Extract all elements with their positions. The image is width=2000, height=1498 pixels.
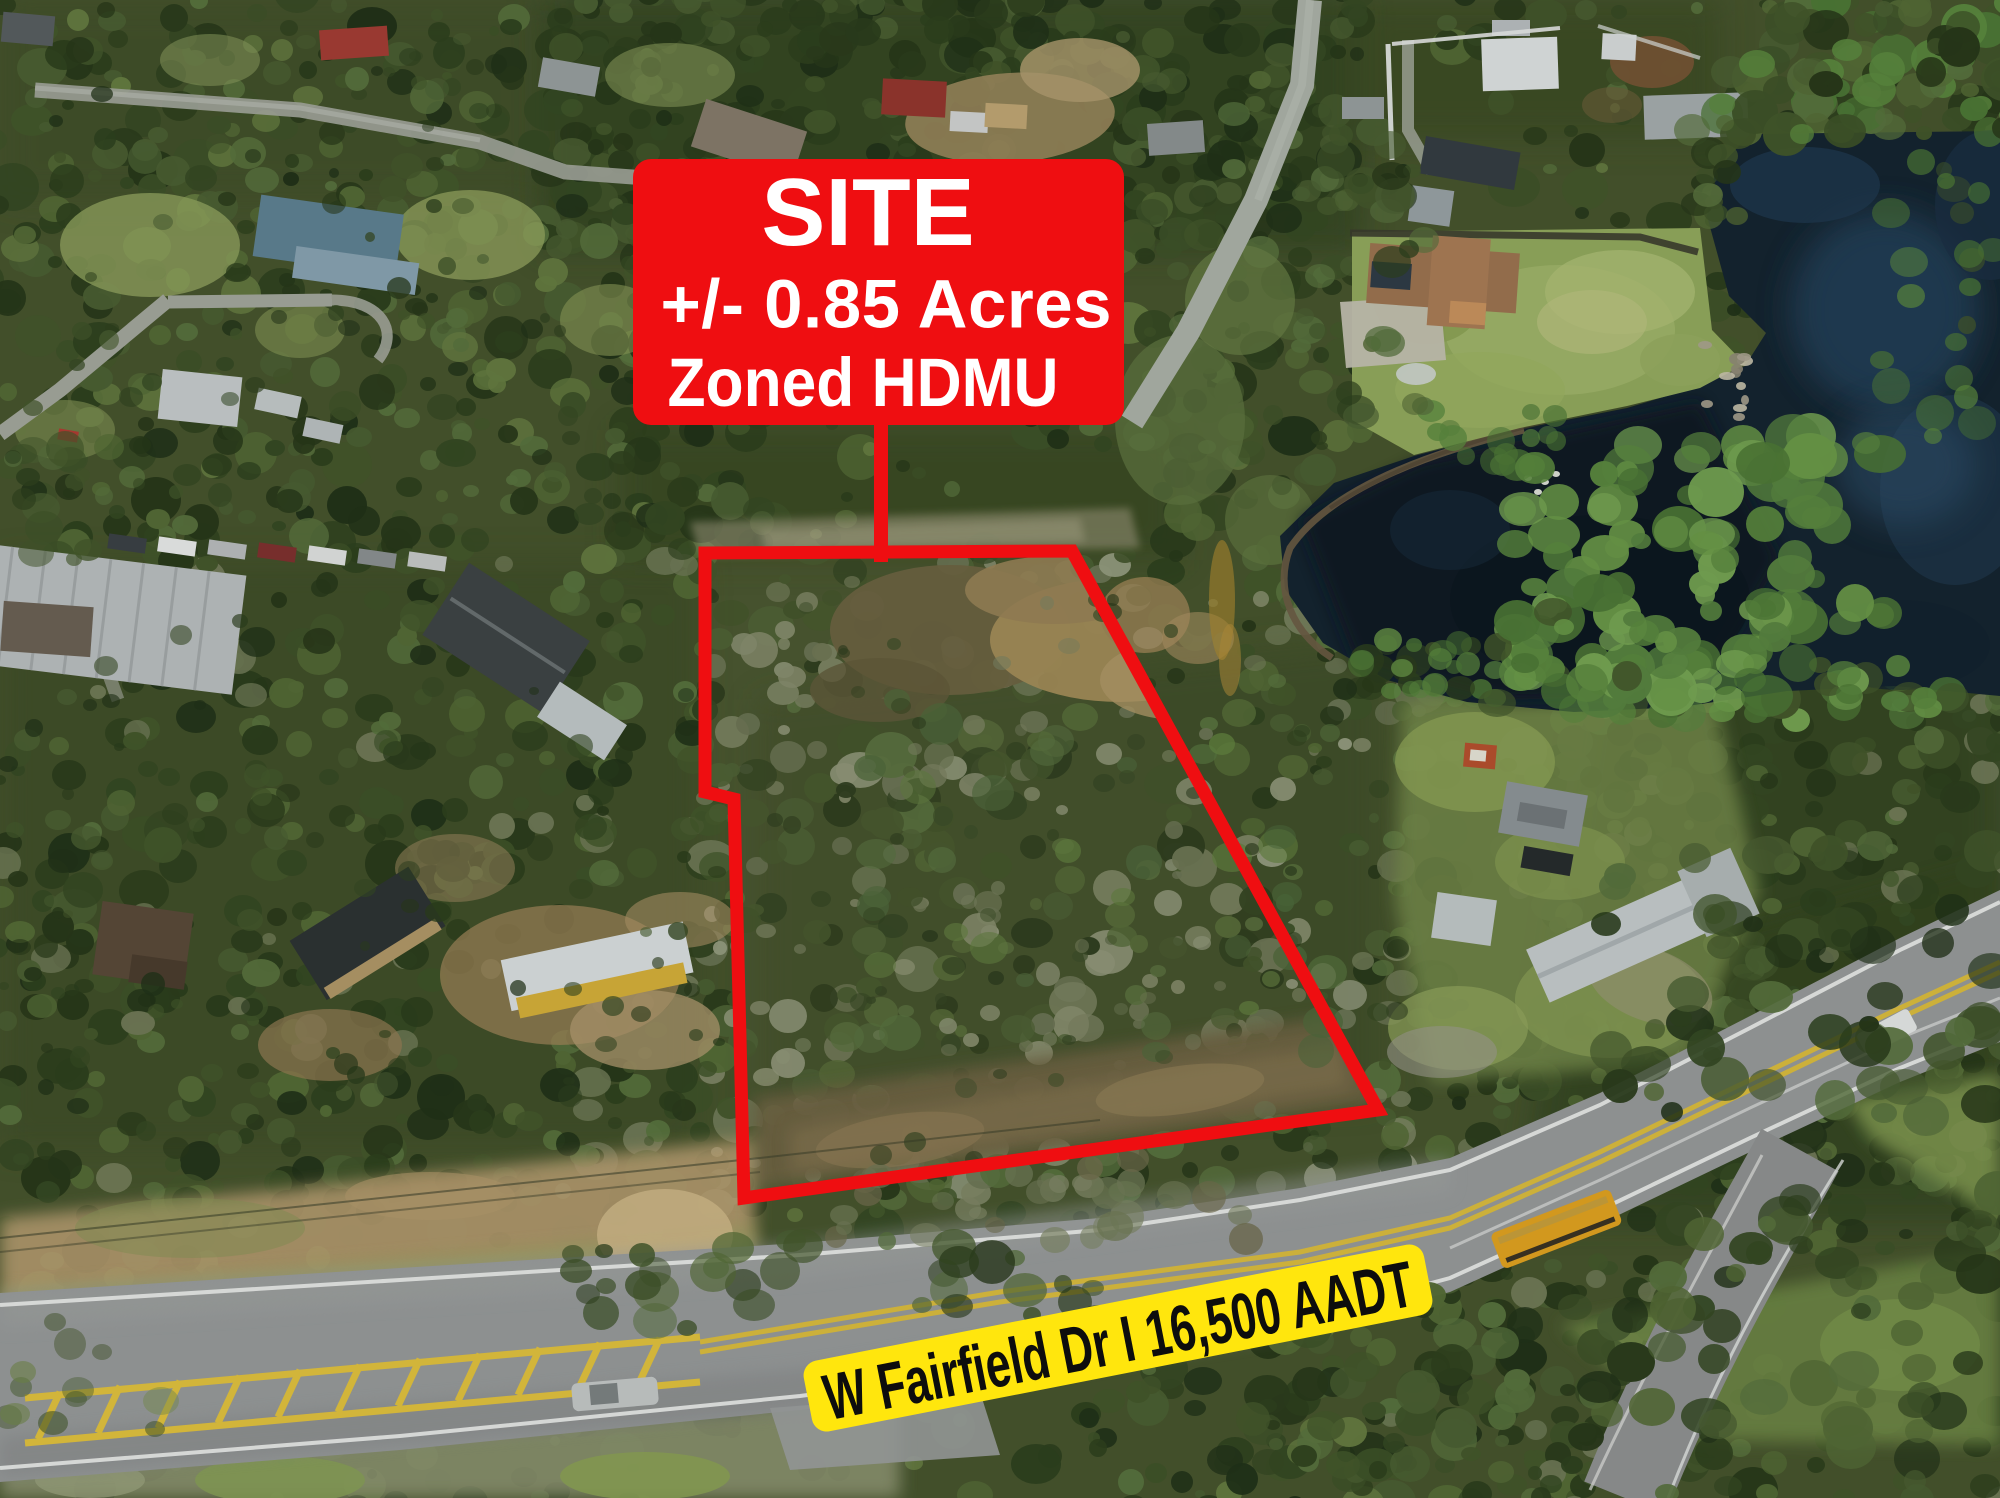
svg-text:Zoned HDMU: Zoned HDMU [668, 344, 1059, 421]
svg-text:SITE: SITE [761, 159, 974, 266]
svg-text:+/- 0.85 Acres: +/- 0.85 Acres [661, 266, 1112, 343]
